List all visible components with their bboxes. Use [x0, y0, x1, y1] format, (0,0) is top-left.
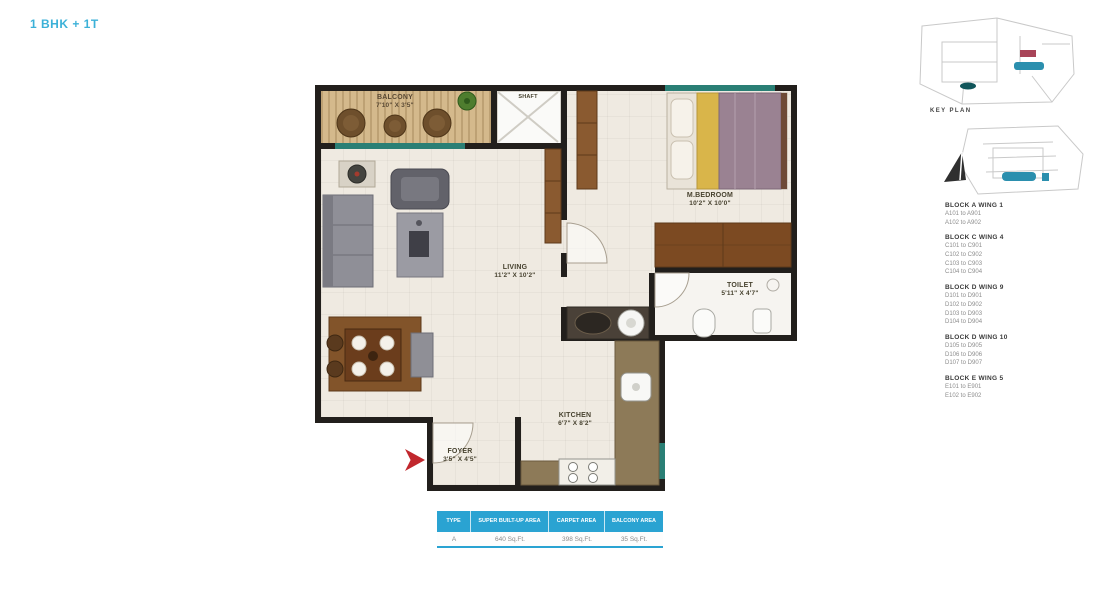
toilet-label: TOILET 5'11" X 4'7": [685, 281, 795, 299]
block-name: BLOCK C WING 4: [945, 234, 1085, 241]
block-group: BLOCK C WING 4 C101 to C901 C102 to C902…: [945, 234, 1085, 277]
key-plan-site-map: [902, 14, 1080, 106]
unit-range: C104 to C904: [945, 268, 1085, 277]
unit-range: D104 to D904: [945, 318, 1085, 327]
living-cabinet: [545, 149, 561, 243]
unit-range: A102 to A902: [945, 219, 1085, 228]
foyer-name: FOYER: [425, 447, 495, 456]
armchair: [391, 169, 449, 209]
bedroom-label: M.BEDROOM 10'2" X 10'0": [645, 191, 775, 209]
unit-range: E101 to E901: [945, 383, 1085, 392]
area-table-header: TYPE SUPER BUILT-UP AREA CARPET AREA BAL…: [437, 511, 663, 532]
block-name: BLOCK D WING 10: [945, 334, 1085, 341]
cell-carpet: 398 Sq.Ft.: [549, 532, 605, 546]
bedroom-name: M.BEDROOM: [645, 191, 775, 200]
toilet-dims: 5'11" X 4'7": [685, 290, 795, 298]
living-dims: 11'2" X 10'2": [465, 272, 565, 280]
unit-range: C102 to C902: [945, 251, 1085, 260]
dining-set: [327, 317, 433, 391]
bedroom-wardrobe-band: [655, 223, 791, 267]
bedroom-wardrobe-left: [577, 91, 597, 189]
key-plan-wing-map: [938, 124, 1086, 196]
foyer-label: FOYER 3'5" X 4'5": [425, 447, 495, 465]
col-balcony: BALCONY AREA: [605, 511, 663, 532]
unit-range: D102 to D902: [945, 301, 1085, 310]
block-group: BLOCK D WING 9 D101 to D901 D102 to D902…: [945, 284, 1085, 327]
stove: [559, 459, 615, 485]
toilet-name: TOILET: [685, 281, 795, 290]
unit-range: C101 to C901: [945, 242, 1085, 251]
floor-plan: BALCONY 7'10" X 3'5" SHAFT M.BEDROOM 10'…: [315, 85, 797, 491]
block-name: BLOCK A WING 1: [945, 202, 1085, 209]
unit-range: E102 to E902: [945, 392, 1085, 401]
cell-balcony: 35 Sq.Ft.: [605, 532, 663, 546]
col-carpet: CARPET AREA: [549, 511, 605, 532]
bed: [667, 93, 787, 189]
living-label: LIVING 11'2" X 10'2": [465, 263, 565, 281]
page-title: 1 BHK + 1T: [30, 17, 99, 31]
balcony-name: BALCONY: [335, 93, 455, 102]
block-name: BLOCK D WING 9: [945, 284, 1085, 291]
cell-super-builtup: 640 Sq.Ft.: [471, 532, 549, 546]
bedroom-dims: 10'2" X 10'0": [645, 200, 775, 208]
col-type: TYPE: [437, 511, 471, 532]
balcony-seats: [337, 109, 451, 137]
unit-range: D106 to D906: [945, 351, 1085, 360]
kitchen-dims: 6'7" X 8'2": [525, 420, 625, 428]
balcony-dims: 7'10" X 3'5": [335, 102, 455, 110]
block-name: BLOCK E WING 5: [945, 375, 1085, 382]
highlight-block-dark: [960, 83, 976, 90]
kitchen-label: KITCHEN 6'7" X 8'2": [525, 411, 625, 429]
shaft-name: SHAFT: [497, 94, 559, 101]
key-plan-label: KEY PLAN: [930, 108, 971, 114]
block-group: BLOCK A WING 1 A101 to A901 A102 to A902: [945, 202, 1085, 227]
unit-range: D105 to D905: [945, 342, 1085, 351]
col-super-builtup: SUPER BUILT-UP AREA: [471, 511, 549, 532]
unit-range: D103 to D903: [945, 310, 1085, 319]
living-name: LIVING: [465, 263, 565, 272]
side-table: [339, 161, 375, 187]
foyer-dims: 3'5" X 4'5": [425, 456, 495, 464]
cell-type: A: [437, 532, 471, 546]
unit-range: A101 to A901: [945, 210, 1085, 219]
kitchen-name: KITCHEN: [525, 411, 625, 420]
unit-range: D101 to D901: [945, 292, 1085, 301]
wing-highlight-small: [1042, 173, 1049, 181]
unit-range: D107 to D907: [945, 359, 1085, 368]
highlight-block-red: [1020, 50, 1036, 57]
balcony-label: BALCONY 7'10" X 3'5": [335, 93, 455, 111]
block-group: BLOCK E WING 5 E101 to E901 E102 to E902: [945, 375, 1085, 400]
area-table-row: A 640 Sq.Ft. 398 Sq.Ft. 35 Sq.Ft.: [437, 532, 663, 548]
block-wing-list: BLOCK A WING 1 A101 to A901 A102 to A902…: [945, 202, 1085, 407]
unit-range: C103 to C903: [945, 260, 1085, 269]
wash-counter: [567, 307, 649, 339]
highlight-block-teal: [1014, 62, 1044, 70]
wing-highlight-teal: [1002, 172, 1036, 181]
area-table: TYPE SUPER BUILT-UP AREA CARPET AREA BAL…: [437, 511, 663, 548]
sofa: [323, 195, 373, 287]
floor-plan-page: 1 BHK + 1T: [0, 0, 1100, 600]
north-arrow-icon: [944, 152, 966, 182]
block-group: BLOCK D WING 10 D105 to D905 D106 to D90…: [945, 334, 1085, 368]
balcony-plant-icon: [458, 92, 476, 110]
shaft-label: SHAFT: [497, 94, 559, 101]
tv-console: [397, 213, 443, 277]
